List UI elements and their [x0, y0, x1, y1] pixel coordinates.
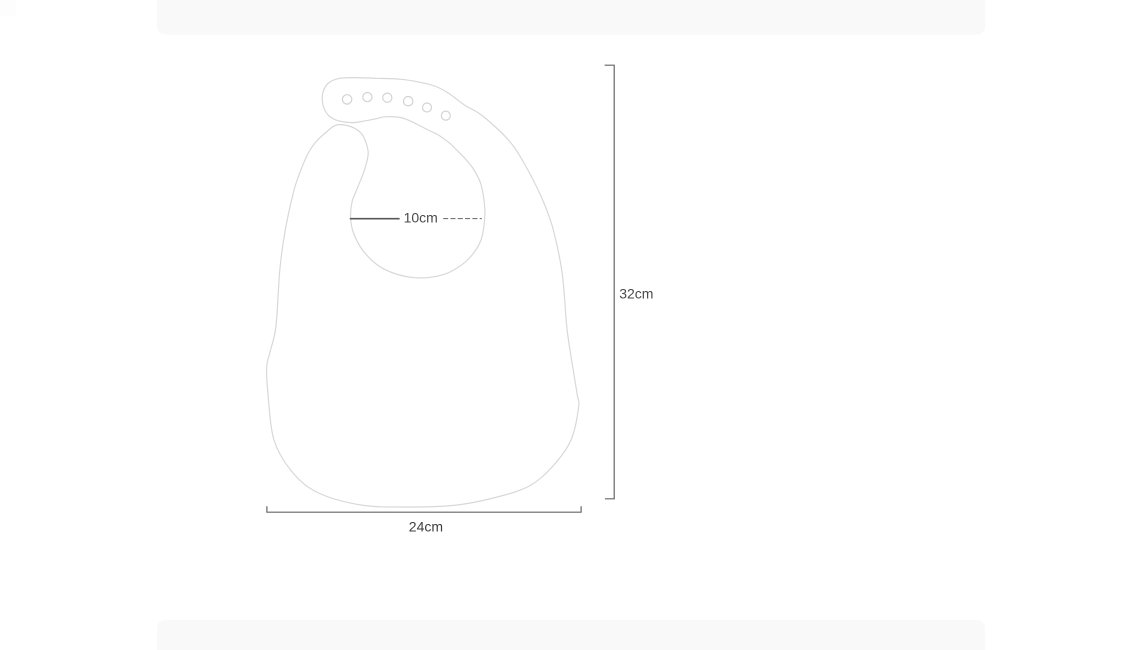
svg-text:10cm: 10cm [404, 210, 438, 226]
svg-text:32cm: 32cm [619, 286, 653, 302]
svg-text:24cm: 24cm [409, 518, 443, 534]
